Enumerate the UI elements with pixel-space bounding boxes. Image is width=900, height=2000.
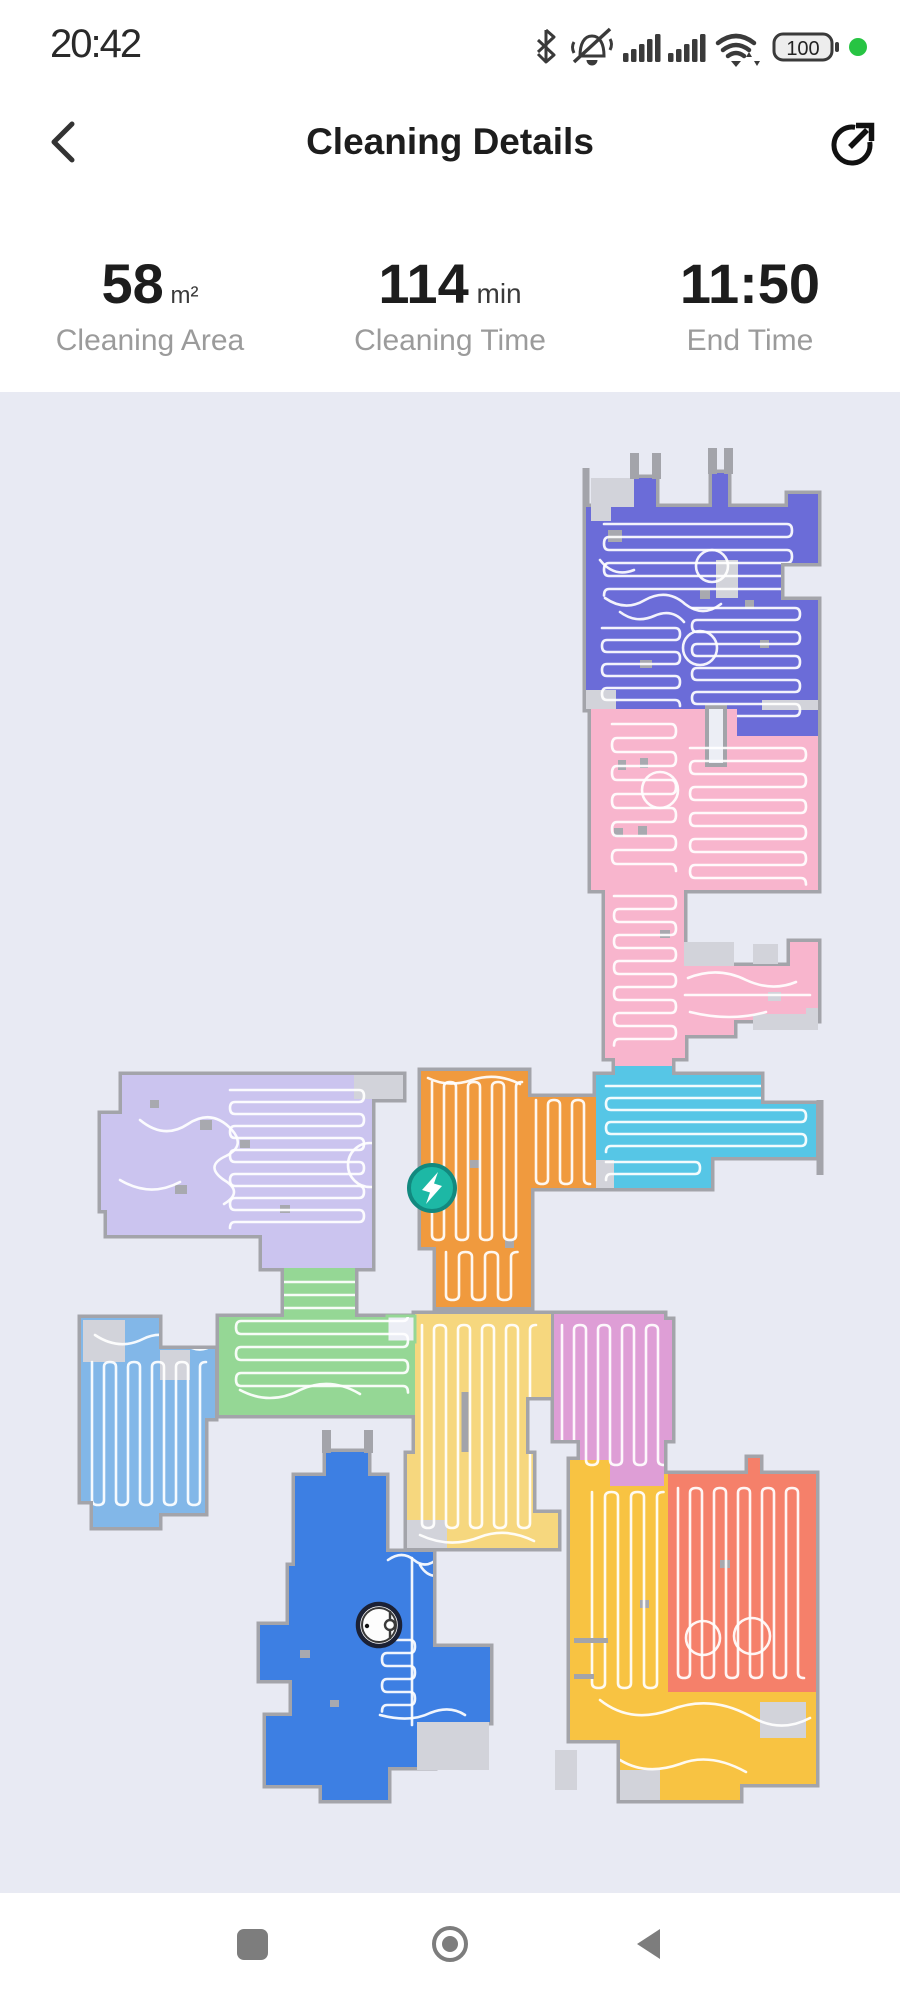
svg-text:100: 100 bbox=[786, 38, 819, 60]
